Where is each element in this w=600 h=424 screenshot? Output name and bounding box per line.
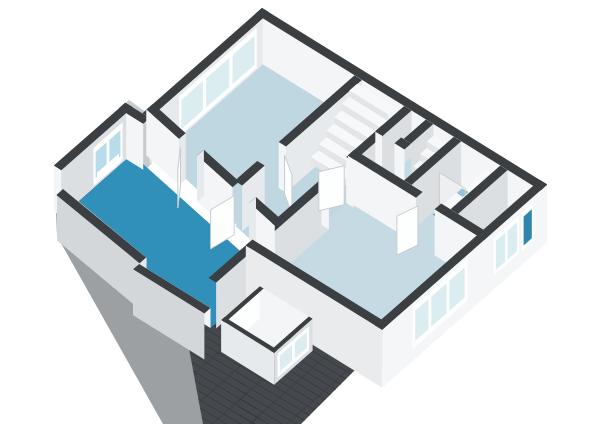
terrace-north-wall-jamb-2 [197, 150, 204, 202]
floorplan-viewport [0, 0, 600, 424]
divider-door-leaf [319, 166, 344, 211]
floorplan-3d-canvas[interactable] [0, 0, 600, 424]
